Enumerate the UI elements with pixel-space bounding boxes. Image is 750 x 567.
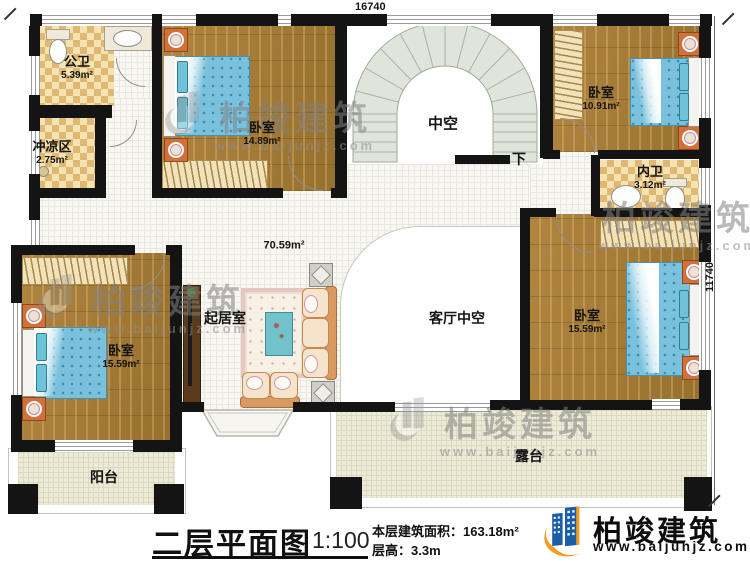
- bed-sheet: [627, 263, 659, 373]
- bed-pillow: [679, 322, 689, 350]
- nightstand: [164, 28, 188, 52]
- wall-segment: [699, 118, 711, 168]
- bay-window: [196, 408, 300, 442]
- wardrobe: [554, 30, 583, 120]
- floor-plan-canvas: 16740 11740: [0, 0, 750, 567]
- wall-segment: [11, 245, 135, 255]
- sofa-pillow: [246, 376, 263, 390]
- wall-segment: [543, 150, 560, 159]
- floor-area-note: 本层建筑面积：163.18m²: [372, 521, 519, 540]
- bed-pillow: [679, 290, 689, 318]
- plant-icon: [187, 288, 196, 297]
- pier: [8, 484, 38, 514]
- wall-segment: [520, 208, 530, 402]
- wall-segment: [170, 245, 182, 452]
- wall-segment: [540, 14, 553, 158]
- bed-pillow: [177, 97, 188, 129]
- wall-segment: [182, 402, 204, 412]
- wardrobe: [22, 257, 128, 285]
- wall-segment: [699, 26, 711, 58]
- wall-segment: [95, 118, 106, 198]
- room-label-public-bath: 公卫 5.39m²: [61, 55, 93, 81]
- room-label-bedroom-right: 卧室 15.59m²: [568, 309, 605, 335]
- room-label-balcony: 阳台: [90, 469, 118, 485]
- right-dimension-label: 11740: [704, 262, 716, 292]
- dimension-tick: [722, 13, 734, 25]
- bed-pillow: [36, 333, 47, 361]
- wall-segment: [591, 155, 600, 216]
- sink-icon: [113, 30, 142, 47]
- wall-segment: [597, 14, 669, 26]
- sofa-pillow: [304, 355, 318, 373]
- room-label-bedroom-top-right: 卧室 10.91m²: [582, 86, 619, 112]
- top-dimension-label: 16740: [355, 1, 386, 13]
- wall-segment: [335, 14, 347, 198]
- wall-segment: [491, 14, 543, 26]
- tv-icon: [188, 300, 192, 386]
- hall-area-label: 70.59m²: [264, 240, 305, 253]
- sofa-pillow: [274, 376, 291, 390]
- nightstand: [22, 304, 46, 328]
- sofa-pillow: [304, 295, 318, 313]
- wardrobe: [600, 220, 700, 248]
- room-label-living: 起居室: [204, 310, 246, 326]
- right-dimension-line: [714, 16, 715, 505]
- window: [652, 399, 680, 410]
- wall-segment: [490, 400, 652, 410]
- room-label-bedroom-left: 卧室 15.59m²: [102, 344, 139, 370]
- wall-segment: [29, 26, 40, 56]
- dimension-tick: [4, 8, 16, 20]
- wall-segment: [152, 14, 162, 192]
- wall-segment: [29, 188, 106, 198]
- wall-segment: [293, 402, 395, 412]
- wall-segment: [680, 399, 711, 410]
- room-label-living-void: 客厅中空: [429, 310, 485, 326]
- nightstand: [164, 138, 188, 162]
- company-website: www.baijunjz.com: [593, 539, 750, 554]
- wall-segment: [29, 105, 112, 118]
- side-table: [309, 263, 333, 287]
- room-label-stair-void: 中空: [428, 115, 458, 132]
- wall-segment: [594, 208, 711, 217]
- pier: [330, 477, 362, 509]
- wall-segment: [11, 255, 22, 303]
- wall-segment: [598, 150, 711, 159]
- company-logo-icon: [541, 504, 589, 560]
- bed-pillow: [679, 63, 689, 91]
- wall-segment: [455, 155, 510, 164]
- pier: [154, 484, 184, 514]
- wardrobe: [162, 160, 268, 191]
- floor-height-note: 层高：3.3m: [372, 540, 441, 559]
- wall-segment: [700, 14, 712, 26]
- nightstand: [22, 397, 46, 421]
- room-label-terrace: 露台: [515, 448, 543, 464]
- room-label-bedroom-top: 卧室 14.89m²: [243, 121, 280, 147]
- wall-segment: [196, 14, 278, 26]
- bed-pillow: [679, 93, 689, 121]
- wall-segment: [30, 14, 42, 26]
- title-underline: [152, 556, 368, 559]
- tv-cabinet: [183, 285, 201, 405]
- drawing-scale: 1:100: [312, 527, 370, 554]
- bed-pillow: [36, 364, 47, 392]
- room-label-inner-bath: 内卫 3.12m²: [634, 165, 666, 191]
- wall-segment: [133, 440, 182, 452]
- bed-pillow: [177, 61, 188, 93]
- stair-down-label: 下: [512, 151, 526, 167]
- wall-segment: [11, 440, 55, 452]
- window: [395, 401, 490, 412]
- sofa-seat: [302, 318, 329, 348]
- bed-sheet: [631, 59, 661, 123]
- wall-segment: [152, 188, 283, 198]
- staircase: [347, 14, 543, 164]
- coffee-table: [265, 312, 293, 356]
- room-label-shower: 冲凉区 2.75m²: [32, 140, 71, 166]
